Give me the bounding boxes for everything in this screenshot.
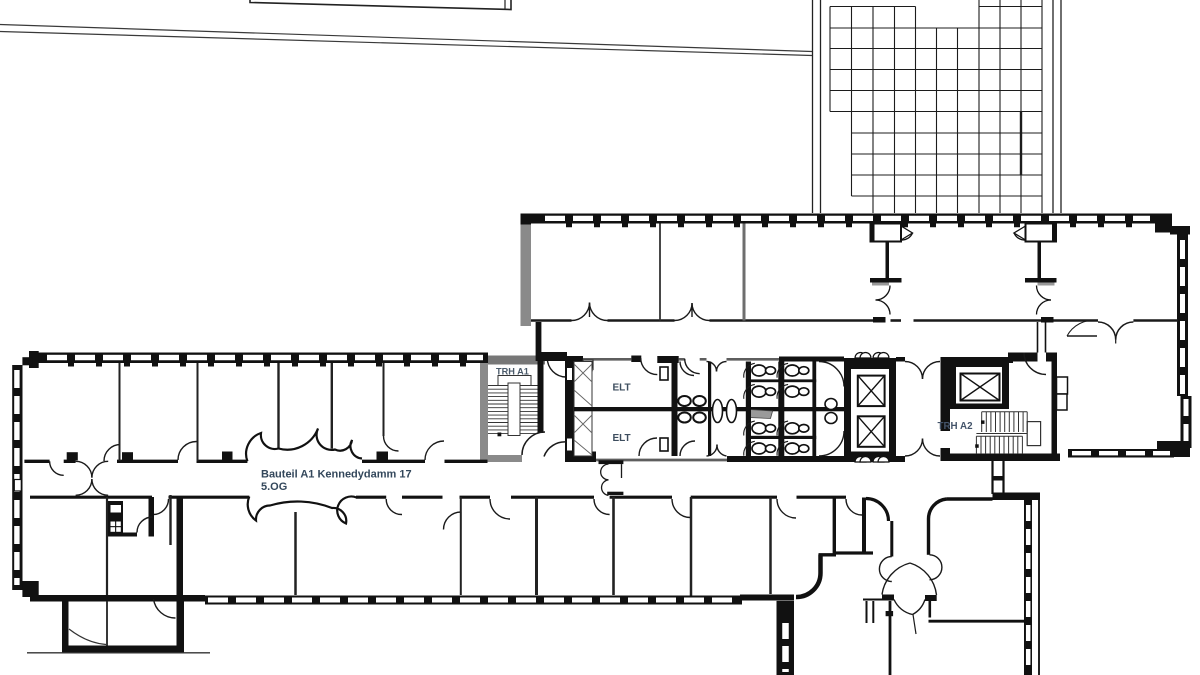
svg-text:ELT: ELT [613,433,631,444]
svg-text:ELT: ELT [613,383,631,394]
svg-text:TRH A2: TRH A2 [938,421,974,432]
svg-text:5.OG: 5.OG [261,481,287,493]
svg-text:Bauteil A1 Kennedydamm 17: Bauteil A1 Kennedydamm 17 [261,469,412,481]
